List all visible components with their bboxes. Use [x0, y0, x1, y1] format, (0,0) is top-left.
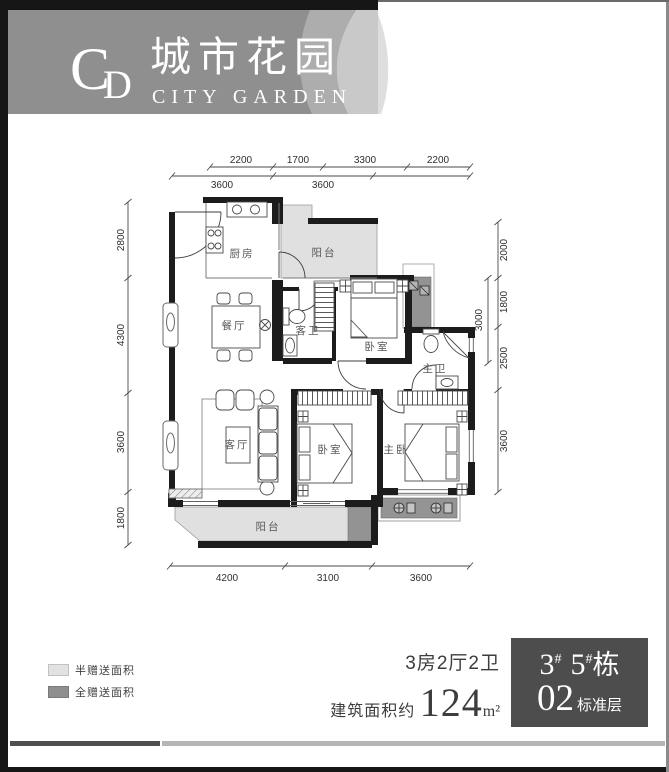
dim-label: 2200 — [230, 155, 253, 166]
room-label-master-bedroom: 主卧 — [384, 443, 409, 456]
balcony-top-area — [281, 205, 377, 278]
legend-swatch-full — [48, 686, 69, 698]
dim-label: 2000 — [499, 238, 510, 261]
master-bath-basin — [436, 376, 458, 389]
dim-label: 3600 — [410, 573, 433, 584]
master-bath-toilet — [423, 329, 439, 353]
legend-row-half: 半赠送面积 — [48, 662, 135, 678]
balcony-bottom-full-gift — [348, 507, 372, 541]
closet-top-bedroom — [315, 283, 334, 331]
window-masterbath-right — [469, 338, 473, 352]
logo-monogram-d: D — [103, 62, 132, 107]
dim-label: 2200 — [427, 155, 450, 166]
dim-label: 1800 — [116, 506, 127, 529]
dim-label: 2800 — [116, 228, 127, 251]
room-label-balcony-bottom: 阳台 — [256, 520, 281, 533]
footer-bars — [10, 741, 665, 746]
sliding-door-balcony — [290, 502, 345, 506]
dim-label: 4300 — [116, 323, 127, 346]
kitchen-sink — [227, 202, 267, 217]
window-living-bottom — [183, 502, 218, 506]
area-unit: m² — [483, 703, 500, 720]
logo-name-cn: 城市花园 — [150, 34, 342, 80]
badge-floor-label: 标准层 — [577, 697, 622, 714]
bedroom-top-door — [338, 361, 366, 389]
unit-area: 建筑面积约 124m² — [270, 679, 500, 726]
window-master-right — [469, 430, 473, 462]
building-badge: 3#5#栋 02标准层 — [511, 638, 648, 727]
footer-bar-dark — [10, 741, 160, 746]
hatch-strip — [169, 489, 202, 498]
room-label-balcony-top: 阳台 — [312, 246, 337, 259]
kitchen-stove — [206, 227, 223, 253]
room-label-master-bath: 主卫 — [423, 363, 448, 375]
ceiling-fan-icon — [260, 320, 271, 331]
master-bath-shower — [443, 332, 469, 358]
unit-summary: 3房2厅2卫 建筑面积约 124m² — [270, 648, 500, 726]
dim-label: 3300 — [354, 155, 377, 166]
banner-swoosh-tail — [378, 14, 388, 114]
legend-row-full: 全赠送面积 — [48, 684, 135, 700]
badge-num1: 3 — [540, 648, 555, 681]
legend-label-full: 全赠送面积 — [75, 684, 135, 700]
badge-building-char: 栋 — [593, 650, 620, 680]
dim-label: 3600 — [312, 180, 335, 191]
wardrobe-master-bedroom — [398, 391, 468, 405]
dim-label: 3600 — [116, 430, 127, 453]
bed-master-bedroom — [405, 411, 467, 495]
legend-label-half: 半赠送面积 — [75, 662, 135, 678]
dim-label: 3100 — [317, 573, 340, 584]
badge-num2: 5 — [571, 648, 586, 681]
bay-window-upper — [163, 303, 178, 347]
logo-name-en: CITY GARDEN — [152, 86, 352, 108]
dim-label: 3600 — [211, 180, 234, 191]
badge-hash1: # — [555, 652, 562, 667]
badge-buildings: 3#5#栋 — [511, 645, 648, 680]
badge-floor-num: 02 — [537, 678, 574, 719]
legend-swatch-half — [48, 664, 69, 676]
brand-banner: C D 城市花园 CITY GARDEN — [0, 0, 388, 114]
area-label: 建筑面积约 — [330, 703, 415, 720]
room-label-dining: 餐厅 — [222, 319, 247, 332]
dim-label: 3000 — [474, 308, 485, 331]
bed-top-bedroom — [340, 279, 408, 338]
footer-bar-light — [162, 741, 665, 746]
guest-bath-basin — [283, 335, 297, 356]
wardrobe-mid-bedroom — [298, 391, 371, 405]
room-label-guest-bath: 客卫 — [296, 324, 321, 337]
banner-top-bar — [0, 0, 378, 10]
dim-label: 1700 — [287, 155, 310, 166]
window-master-bottom — [398, 490, 448, 494]
badge-hash2: # — [586, 652, 593, 667]
room-label-bedroom-top: 卧室 — [365, 340, 390, 353]
dim-label: 2500 — [499, 346, 510, 369]
area-value: 124 — [420, 680, 483, 725]
dim-label: 1800 — [499, 290, 510, 313]
badge-floor: 02标准层 — [511, 682, 648, 723]
legend: 半赠送面积 全赠送面积 — [48, 662, 135, 706]
unit-layout: 3房2厅2卫 — [270, 648, 500, 675]
bay-window-lower — [163, 421, 178, 470]
dim-label: 4200 — [216, 573, 239, 584]
dim-label: 3600 — [499, 429, 510, 452]
room-label-living: 客厅 — [225, 438, 250, 451]
guest-bath-toilet — [283, 308, 305, 325]
room-label-bedroom-mid: 卧室 — [318, 443, 343, 456]
room-label-kitchen: 厨房 — [230, 247, 255, 260]
floorplan-page: C D 城市花园 CITY GARDEN 2200 1700 3300 2200… — [0, 0, 669, 772]
